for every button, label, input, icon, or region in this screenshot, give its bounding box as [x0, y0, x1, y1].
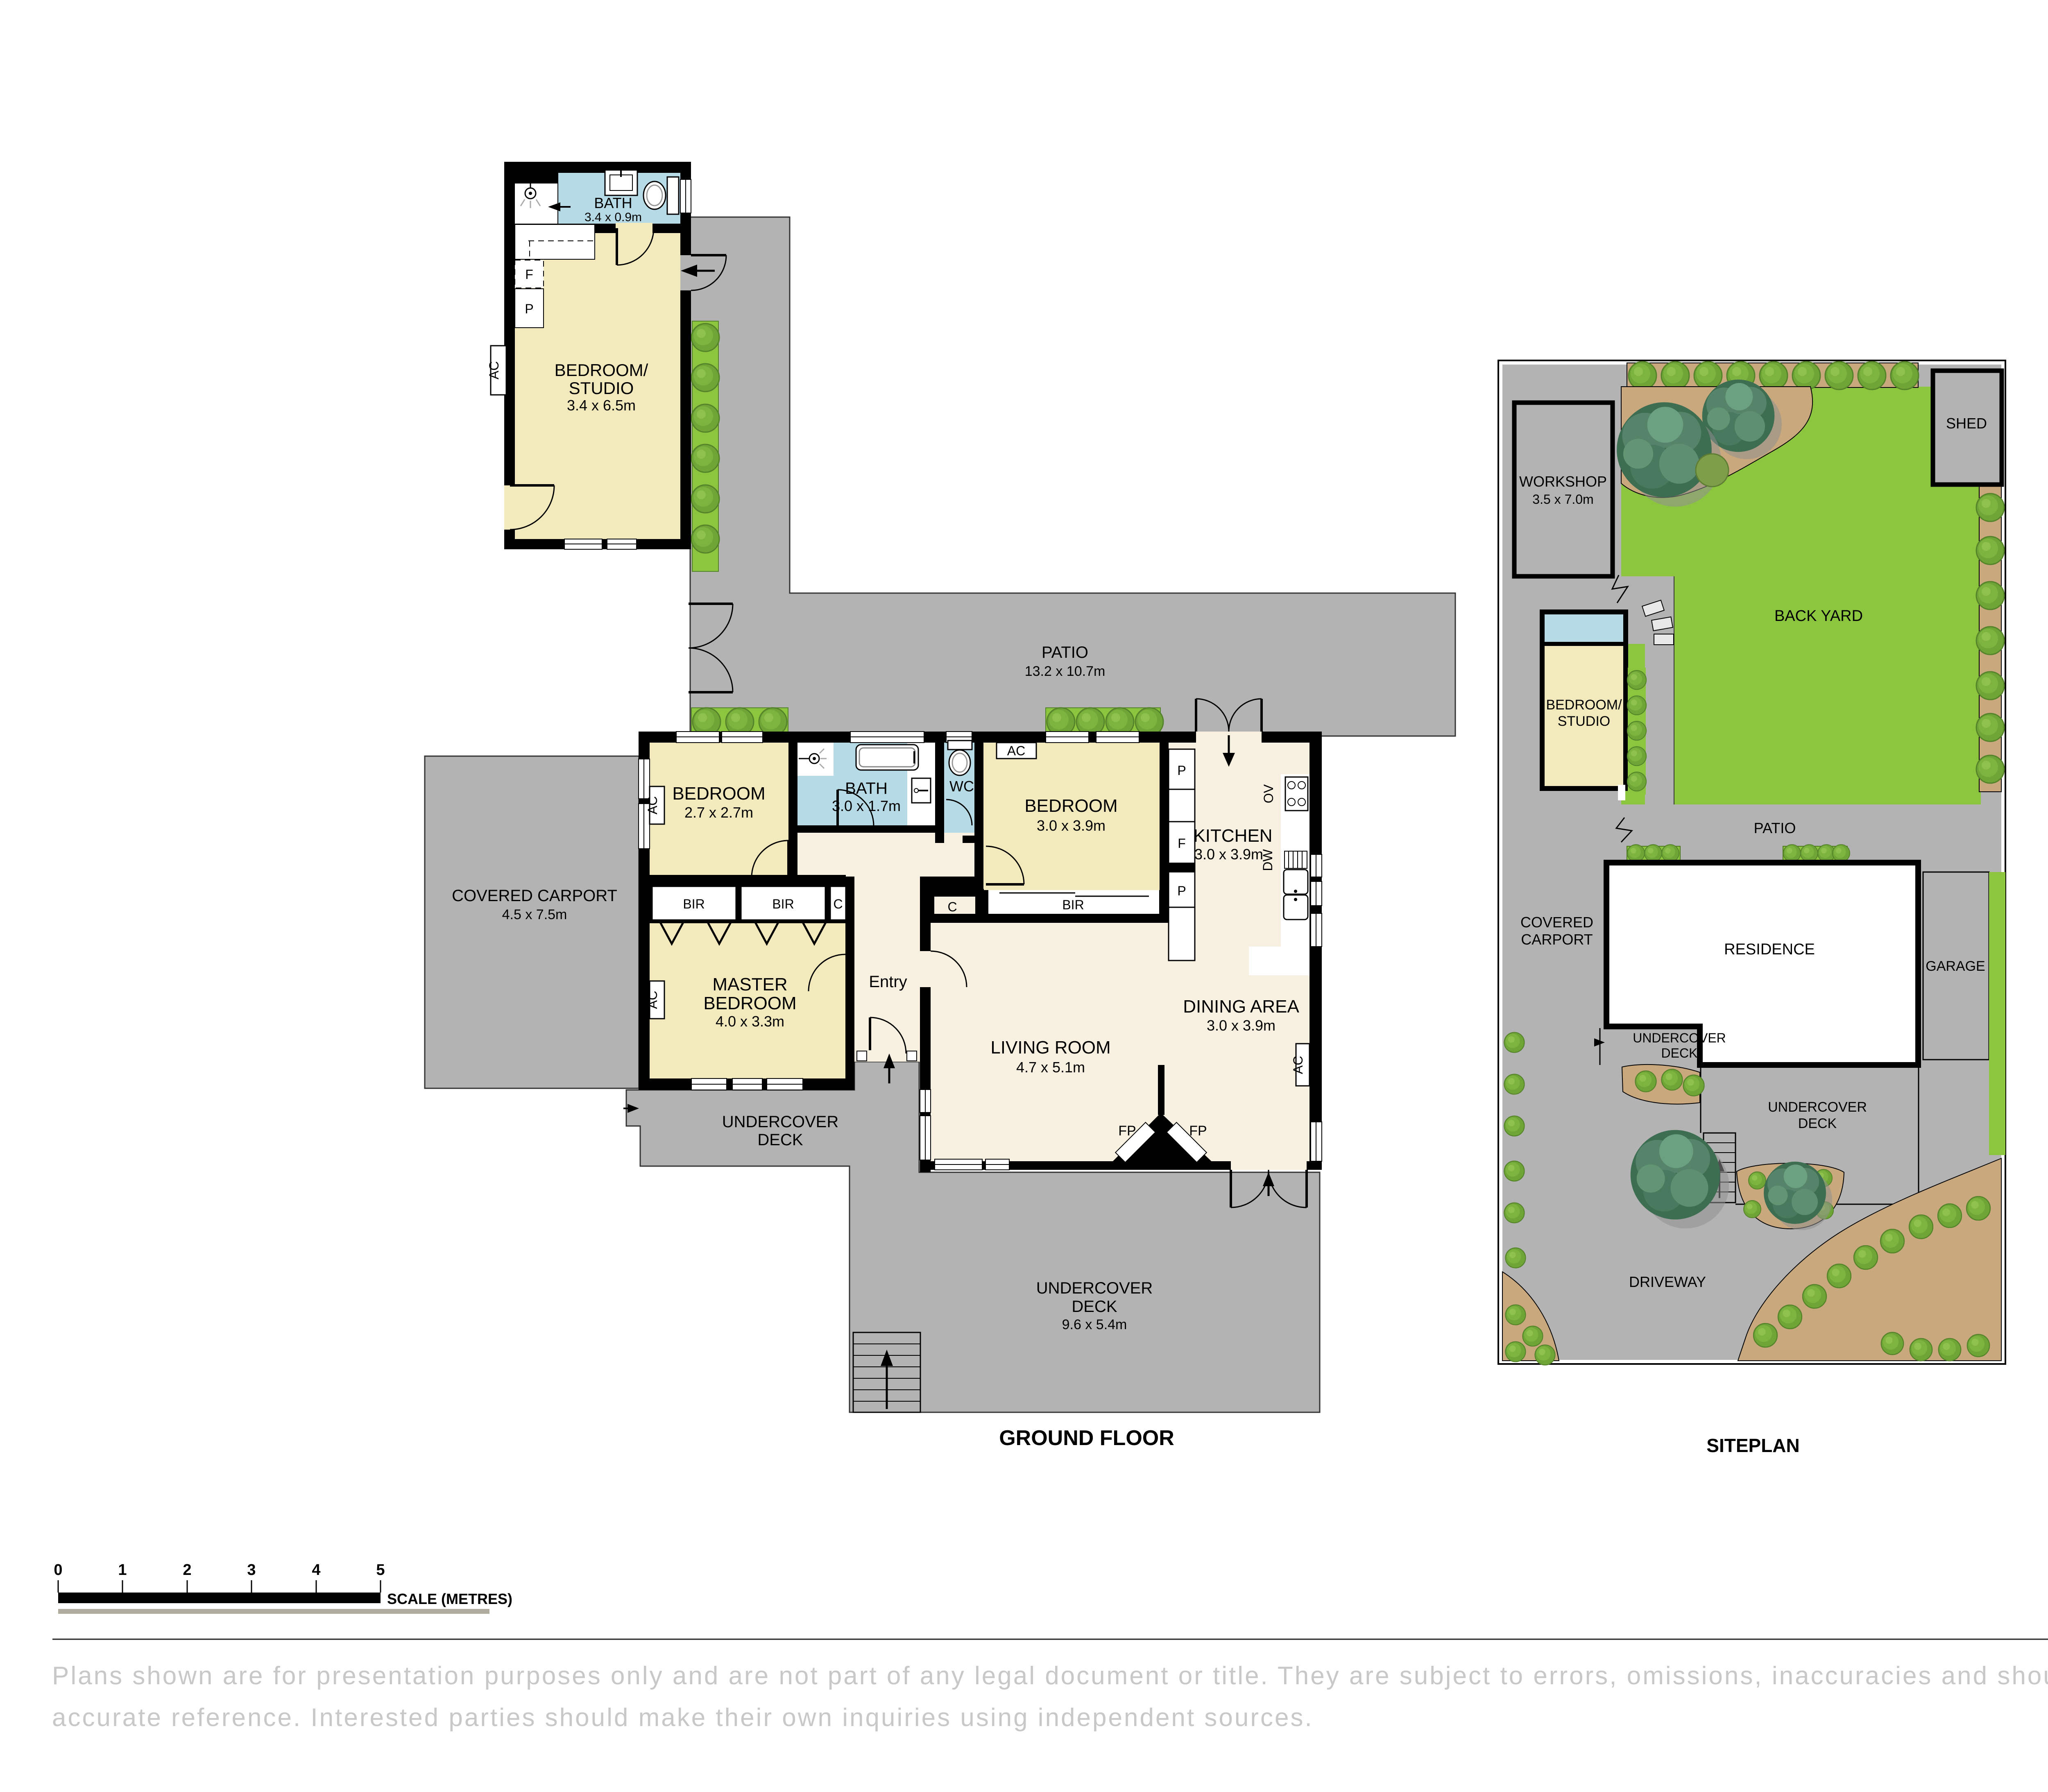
svg-text:3: 3 [247, 1561, 256, 1579]
svg-text:FP: FP [1189, 1123, 1207, 1139]
svg-text:Plans shown are for presentati: Plans shown are for presentation purpose… [52, 1662, 2048, 1690]
svg-text:0: 0 [54, 1561, 62, 1579]
svg-text:AC: AC [1291, 1056, 1305, 1074]
svg-text:FP: FP [1118, 1123, 1136, 1139]
svg-text:C: C [947, 899, 957, 914]
svg-text:COVERED: COVERED [1520, 914, 1593, 931]
svg-text:DECK: DECK [1072, 1298, 1117, 1316]
svg-text:4.5 x 7.5m: 4.5 x 7.5m [502, 907, 567, 922]
svg-text:OV: OV [1261, 784, 1276, 803]
svg-text:2.7 x 2.7m: 2.7 x 2.7m [684, 804, 753, 821]
svg-text:STUDIO: STUDIO [569, 378, 634, 398]
svg-text:STUDIO: STUDIO [1558, 714, 1610, 729]
svg-text:PATIO: PATIO [1042, 643, 1088, 662]
svg-text:5: 5 [376, 1561, 385, 1579]
svg-text:DECK: DECK [1798, 1116, 1837, 1131]
svg-text:DECK: DECK [757, 1131, 803, 1149]
svg-text:13.2 x 10.7m: 13.2 x 10.7m [1025, 664, 1106, 679]
svg-text:3.0 x 3.9m: 3.0 x 3.9m [1037, 817, 1106, 834]
svg-text:1: 1 [118, 1561, 127, 1579]
svg-text:BEDROOM: BEDROOM [672, 784, 765, 804]
svg-text:AC: AC [645, 796, 660, 814]
svg-text:GARAGE: GARAGE [1926, 958, 1985, 974]
svg-text:GROUND FLOOR: GROUND FLOOR [999, 1426, 1174, 1450]
svg-text:RESIDENCE: RESIDENCE [1724, 941, 1815, 958]
svg-text:3.0 x 3.9m: 3.0 x 3.9m [1194, 846, 1263, 863]
svg-text:BEDROOM: BEDROOM [1024, 796, 1117, 816]
svg-text:UNDERCOVER: UNDERCOVER [722, 1113, 838, 1131]
svg-text:MASTER: MASTER [712, 974, 787, 995]
svg-text:BATH: BATH [845, 779, 888, 797]
svg-text:CARPORT: CARPORT [1521, 931, 1593, 948]
svg-text:P: P [525, 301, 533, 316]
svg-text:BACK YARD: BACK YARD [1774, 607, 1863, 625]
svg-text:3.0 x 3.9m: 3.0 x 3.9m [1207, 1017, 1275, 1034]
svg-text:AC: AC [1007, 743, 1025, 758]
svg-text:SHED: SHED [1946, 415, 1987, 432]
svg-text:9.6 x 5.4m: 9.6 x 5.4m [1062, 1317, 1127, 1332]
svg-text:KITCHEN: KITCHEN [1193, 826, 1272, 846]
svg-text:BATH: BATH [594, 195, 632, 211]
svg-text:3.5 x 7.0m: 3.5 x 7.0m [1532, 492, 1593, 507]
svg-text:4: 4 [312, 1561, 320, 1579]
svg-text:F: F [1178, 836, 1186, 851]
svg-text:SCALE (METRES): SCALE (METRES) [387, 1590, 512, 1607]
svg-text:4.7 x 5.1m: 4.7 x 5.1m [1016, 1059, 1085, 1076]
svg-text:LIVING ROOM: LIVING ROOM [990, 1038, 1110, 1058]
svg-text:accurate reference. Interested: accurate reference. Interested parties s… [52, 1704, 1314, 1732]
svg-text:DINING AREA: DINING AREA [1183, 997, 1299, 1017]
svg-text:F: F [525, 267, 533, 282]
svg-text:BEDROOM: BEDROOM [703, 993, 796, 1013]
svg-text:4.0 x 3.3m: 4.0 x 3.3m [716, 1013, 784, 1030]
svg-text:BIR: BIR [683, 897, 705, 911]
svg-text:UNDERCOVER: UNDERCOVER [1036, 1279, 1153, 1297]
svg-text:C: C [833, 897, 843, 911]
svg-text:3.0 x 1.7m: 3.0 x 1.7m [832, 797, 901, 814]
svg-text:BIR: BIR [772, 897, 794, 911]
svg-text:BEDROOM/: BEDROOM/ [1546, 697, 1622, 713]
svg-text:UNDERCOVER: UNDERCOVER [1768, 1099, 1867, 1115]
svg-text:3.4 x 0.9m: 3.4 x 0.9m [584, 211, 642, 224]
svg-text:COVERED CARPORT: COVERED CARPORT [452, 887, 617, 905]
svg-text:WC: WC [949, 778, 974, 795]
svg-text:AC: AC [487, 361, 501, 379]
svg-text:UNDERCOVER: UNDERCOVER [1633, 1031, 1726, 1045]
svg-text:3.4 x 6.5m: 3.4 x 6.5m [567, 397, 636, 414]
svg-text:2: 2 [183, 1561, 191, 1579]
svg-text:P: P [1177, 763, 1186, 778]
svg-text:BIR: BIR [1062, 897, 1084, 912]
svg-text:PATIO: PATIO [1754, 820, 1796, 836]
svg-text:AC: AC [645, 991, 660, 1009]
svg-text:DECK: DECK [1661, 1046, 1698, 1060]
svg-text:DRIVEWAY: DRIVEWAY [1629, 1273, 1706, 1290]
svg-text:WORKSHOP: WORKSHOP [1519, 473, 1607, 490]
svg-text:BEDROOM/: BEDROOM/ [555, 360, 648, 380]
svg-text:P: P [1177, 884, 1186, 898]
svg-text:Entry: Entry [869, 973, 907, 991]
svg-text:SITEPLAN: SITEPLAN [1706, 1435, 1799, 1456]
